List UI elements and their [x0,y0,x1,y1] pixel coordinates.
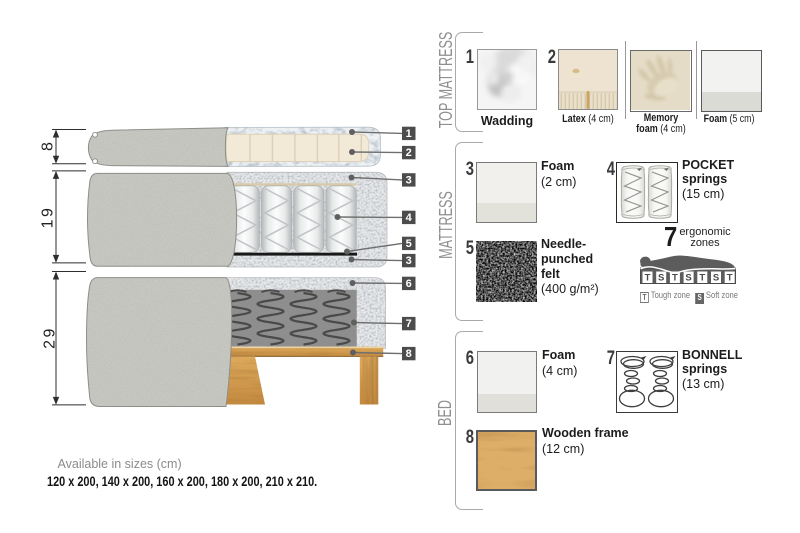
svg-text:8: 8 [40,142,57,151]
svg-text:T: T [727,273,733,284]
svg-text:29: 29 [42,326,59,349]
svg-text:T: T [699,273,705,284]
svg-text:T: T [645,273,651,284]
svg-text:6: 6 [406,278,412,290]
svg-text:S: S [713,273,719,284]
svg-text:T: T [672,273,678,284]
svg-text:5: 5 [406,238,412,250]
svg-text:7: 7 [406,318,412,330]
svg-text:S: S [658,273,664,284]
svg-text:S: S [685,273,691,284]
svg-text:3: 3 [406,255,412,267]
svg-text:3: 3 [406,174,412,186]
svg-text:1: 1 [406,128,412,140]
svg-text:2: 2 [406,147,412,159]
svg-text:8: 8 [406,348,412,360]
svg-text:4: 4 [406,212,413,224]
svg-text:19: 19 [40,206,57,229]
